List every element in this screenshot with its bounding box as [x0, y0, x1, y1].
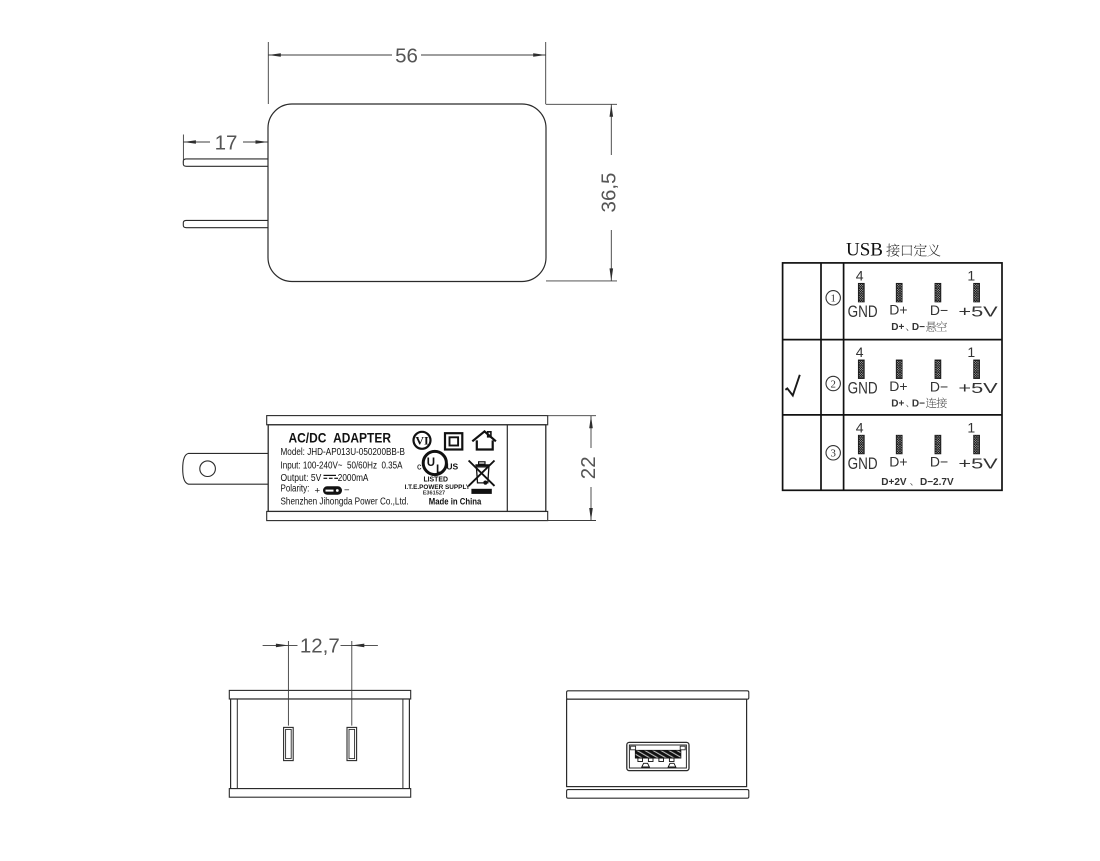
svg-text:AC/DC ADAPTER: AC/DC ADAPTER	[289, 430, 392, 445]
svg-text:Output: 5V: Output: 5V	[281, 473, 322, 484]
svg-text:4: 4	[856, 344, 864, 360]
svg-text:2000mA: 2000mA	[338, 473, 369, 484]
svg-text:US: US	[446, 461, 458, 471]
svg-text:1: 1	[967, 267, 975, 283]
svg-text:D−: D−	[912, 398, 925, 409]
svg-text:USB: USB	[846, 240, 883, 261]
svg-text:56: 56	[395, 44, 418, 67]
svg-text:+5V: +5V	[958, 380, 997, 397]
svg-text:LISTED: LISTED	[423, 477, 448, 484]
svg-text:GND: GND	[848, 455, 878, 473]
svg-text:Made in China: Made in China	[429, 497, 482, 507]
svg-text:+5V: +5V	[958, 304, 997, 321]
svg-text:Polarity:: Polarity:	[281, 484, 310, 495]
svg-text:4: 4	[856, 267, 864, 283]
svg-text:12,7: 12,7	[300, 635, 340, 658]
svg-text:Input: 100-240V~ 50/60Hz 0.3: Input: 100-240V~ 50/60Hz 0.35A	[281, 461, 403, 472]
svg-text:E361527: E361527	[423, 490, 445, 496]
svg-text:GND: GND	[848, 303, 878, 321]
svg-text:D−: D−	[930, 302, 948, 318]
svg-text:2: 2	[830, 378, 835, 390]
svg-text:D+: D+	[889, 378, 907, 394]
svg-text:+: +	[315, 486, 321, 497]
svg-text:VI: VI	[415, 434, 429, 448]
svg-text:−: −	[344, 485, 350, 496]
svg-text:D+: D+	[889, 302, 907, 318]
svg-text:D−: D−	[930, 378, 948, 394]
svg-text:D−: D−	[930, 454, 948, 470]
svg-text:D−2.7V: D−2.7V	[920, 477, 954, 488]
svg-text:3: 3	[830, 448, 835, 460]
svg-text:GND: GND	[848, 380, 878, 398]
svg-text:1: 1	[830, 293, 835, 305]
svg-text:Model: JHD-AP013U-050200BB-B: Model: JHD-AP013U-050200BB-B	[281, 447, 406, 458]
svg-text:1: 1	[967, 344, 975, 360]
svg-text:D+: D+	[891, 322, 904, 333]
svg-text:36,5: 36,5	[597, 173, 620, 213]
svg-text:D+: D+	[891, 398, 904, 409]
svg-text:D−: D−	[912, 322, 925, 333]
svg-text:22: 22	[577, 456, 600, 479]
svg-text:D+2V: D+2V	[881, 477, 907, 488]
svg-text:U: U	[427, 457, 435, 469]
svg-text:17: 17	[215, 131, 238, 154]
svg-text:4: 4	[856, 419, 864, 435]
svg-text:L: L	[436, 464, 443, 476]
svg-text:D+: D+	[889, 454, 907, 470]
svg-text:+5V: +5V	[958, 456, 997, 473]
svg-text:Shenzhen Jihongda Power Co.,Lt: Shenzhen Jihongda Power Co.,Ltd.	[281, 497, 409, 508]
svg-text:c: c	[417, 461, 422, 471]
svg-text:1: 1	[967, 419, 975, 435]
